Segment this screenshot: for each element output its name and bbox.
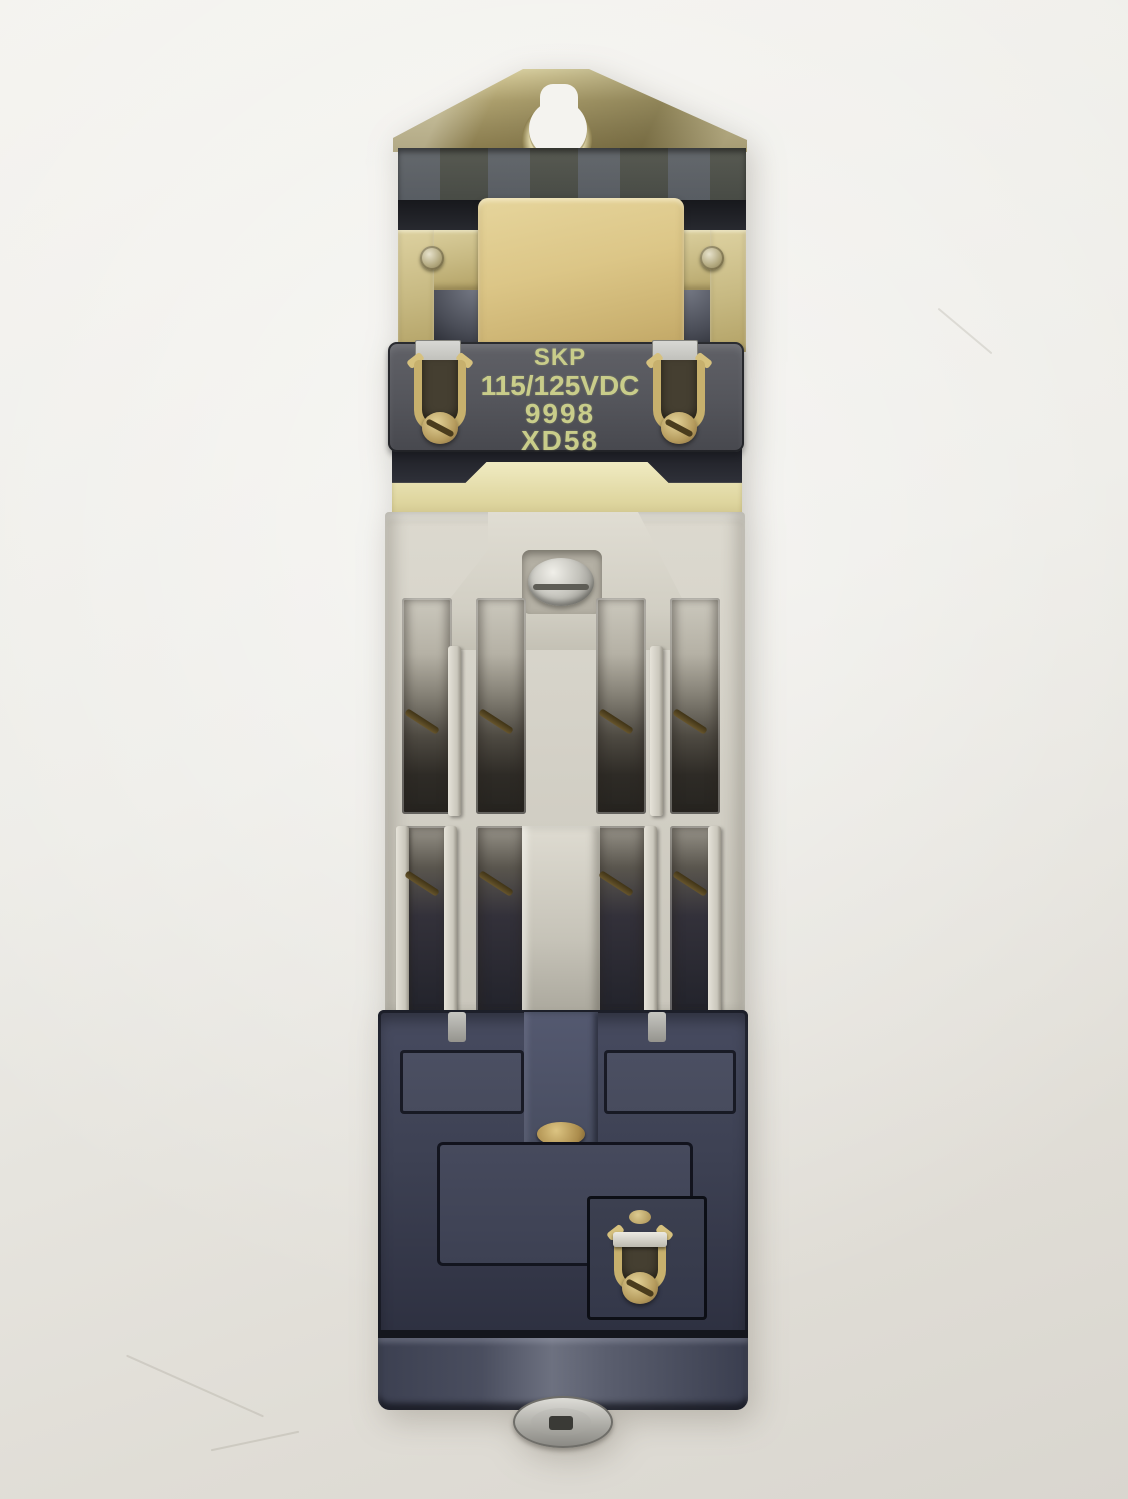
divider-rail bbox=[396, 826, 409, 1018]
clamp-screw bbox=[661, 412, 697, 444]
coil-core-plate bbox=[478, 198, 684, 354]
lower-clamp-terminal bbox=[606, 1210, 674, 1306]
terminal-screw bbox=[671, 862, 719, 880]
terminal-screw bbox=[403, 700, 451, 718]
clamp-stud bbox=[629, 1210, 651, 1224]
housing-step-right bbox=[604, 1050, 736, 1114]
clamp-screw bbox=[422, 412, 458, 444]
divider-rail bbox=[644, 826, 657, 1018]
terminal-screw bbox=[403, 862, 451, 880]
coil-clamp-terminal-right bbox=[645, 350, 713, 446]
terminal-slot bbox=[476, 826, 526, 1014]
boss-slotted-screw bbox=[528, 558, 594, 606]
center-rib bbox=[522, 826, 600, 1016]
terminal-screw bbox=[477, 862, 525, 880]
divider-rail bbox=[708, 826, 721, 1018]
terminal-screw bbox=[597, 862, 645, 880]
divider-rail bbox=[444, 826, 457, 1018]
label-number: 9998 bbox=[525, 400, 595, 427]
divider-rail bbox=[448, 646, 461, 816]
terminal-screw bbox=[477, 700, 525, 718]
terminal-screw bbox=[597, 700, 645, 718]
label-voltage: 115/125VDC bbox=[481, 372, 640, 400]
photo-scene: SKP 115/125VDC 9998 XD58 bbox=[0, 0, 1128, 1499]
clamp-screw bbox=[622, 1272, 658, 1304]
terminal-slot bbox=[596, 826, 646, 1014]
divider-rail bbox=[650, 646, 663, 816]
coil-clamp-terminal-left bbox=[406, 350, 474, 446]
screw-tip bbox=[648, 1012, 666, 1042]
label-brand: SKP bbox=[534, 344, 586, 372]
terminal-screw bbox=[671, 700, 719, 718]
frame-screw-right bbox=[700, 246, 724, 270]
relay-device: SKP 115/125VDC 9998 XD58 bbox=[0, 0, 1128, 1499]
clamp-silver-bar bbox=[613, 1232, 667, 1247]
label-code: XD58 bbox=[521, 427, 599, 454]
screw-tip bbox=[448, 1012, 466, 1042]
housing-step-left bbox=[400, 1050, 524, 1114]
frame-screw-left bbox=[420, 246, 444, 270]
base-nut-socket bbox=[549, 1416, 573, 1430]
